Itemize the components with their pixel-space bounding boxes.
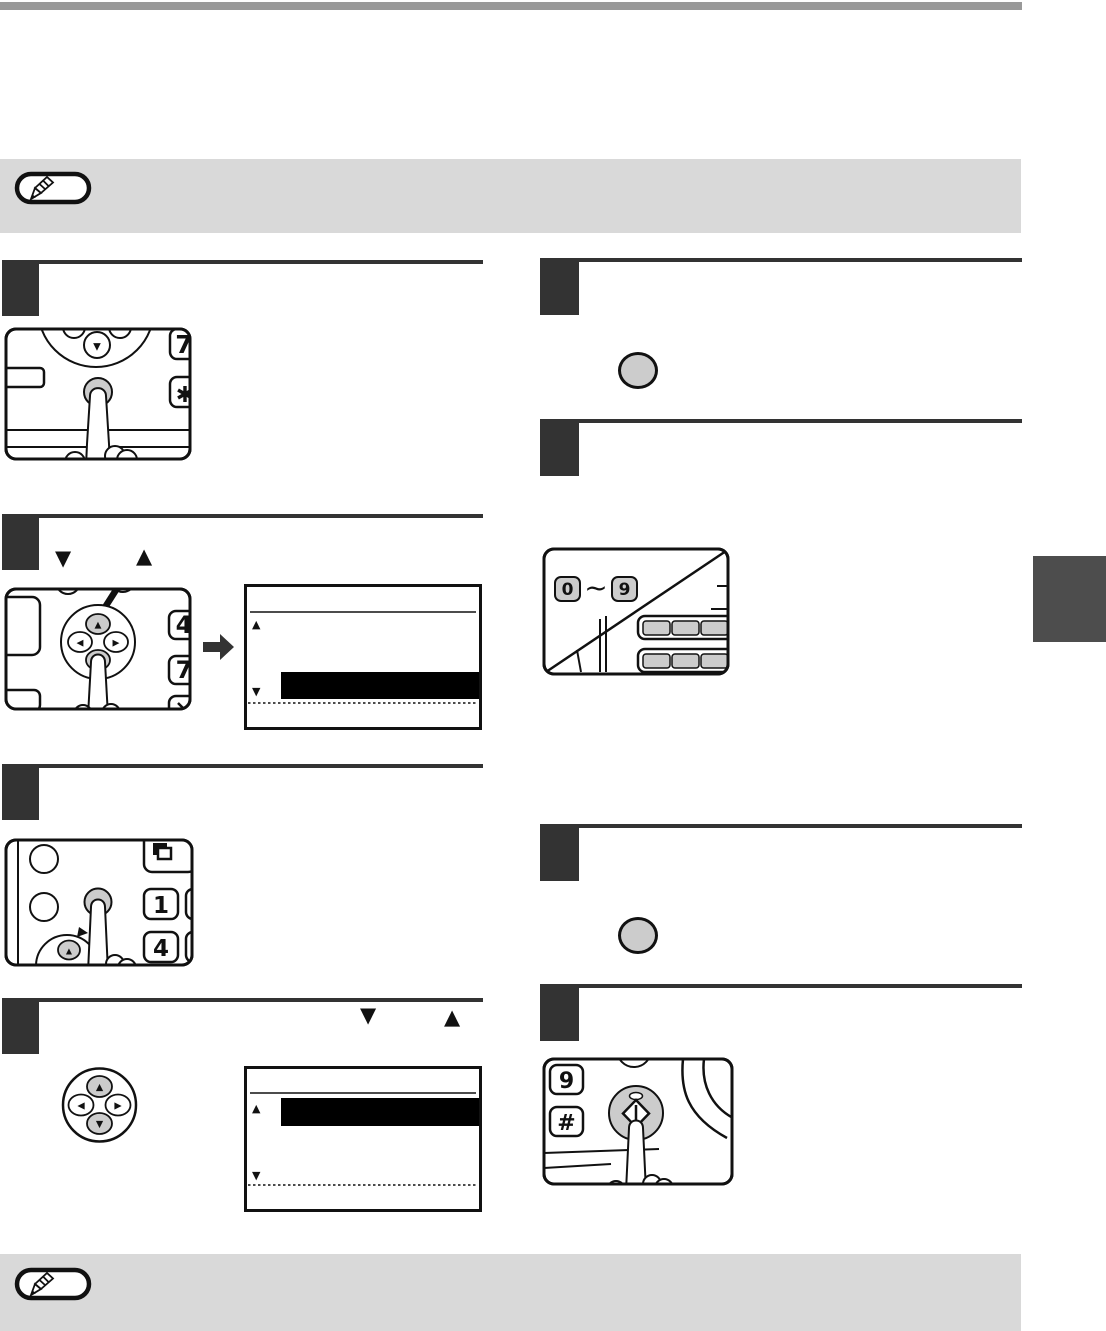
pad-left-glyph: ◀ — [77, 1101, 85, 1112]
heading-down-key-glyph: ▼ — [55, 548, 71, 569]
display-select-1: ▲ ▼ — [244, 584, 482, 730]
note-pill-top — [14, 171, 92, 205]
pad-right-glyph: ▶ — [113, 639, 120, 649]
scroll-up-glyph: ▲ — [252, 618, 261, 631]
key-hash-label: # — [557, 1111, 575, 1136]
key-4-label: 4 — [153, 936, 169, 962]
finger — [88, 900, 108, 969]
step-number-box-left-4 — [2, 998, 39, 1054]
ok-key-panel-illustration: 1 4 ▲ — [3, 837, 195, 968]
chapter-side-tab — [1033, 556, 1106, 642]
key-9-label: 9 — [619, 580, 631, 600]
heading-up-key-glyph: ▲ — [444, 1007, 460, 1028]
note-band-bottom — [0, 1254, 1021, 1331]
finger — [626, 1121, 646, 1188]
scroll-down-glyph: ▼ — [252, 685, 261, 698]
heading-up-key-glyph: ▲ — [136, 546, 152, 567]
page-top-bar — [0, 2, 1022, 10]
step-rule-left-4 — [2, 998, 483, 1002]
tilde-glyph: ~ — [584, 571, 607, 604]
pad-left-glyph: ◀ — [77, 639, 84, 649]
step-number-box-right-4 — [540, 984, 579, 1041]
selected-row-highlight — [281, 1098, 479, 1126]
note-pill-bottom — [14, 1267, 92, 1301]
pad-down-glyph: ▼ — [96, 1119, 104, 1130]
wheel-down-glyph: ▼ — [93, 342, 101, 353]
side-key — [3, 368, 44, 387]
step-number-box-right-3 — [540, 824, 579, 881]
key-9-label: 9 — [559, 1069, 574, 1094]
ok-key-icon — [618, 352, 658, 389]
start-key-panel-illustration: 9 # — [541, 1056, 735, 1187]
step-rule-right-4 — [540, 984, 1022, 988]
arrow-right-icon — [203, 633, 235, 661]
step-number-box-right-2 — [540, 419, 579, 476]
ok-key-icon — [618, 917, 658, 954]
manual-page: ▼ 7 ✱ ▼ ▲ ▲ ◀ — [0, 0, 1106, 1331]
step-number-box-left-1 — [2, 260, 39, 316]
pad-up-glyph: ▲ — [96, 1082, 104, 1093]
pad-up-glyph: ▲ — [66, 947, 73, 956]
step-rule-right-2 — [540, 419, 1022, 423]
pad-right-glyph: ▶ — [114, 1101, 122, 1112]
step-rule-right-1 — [540, 258, 1022, 262]
step-rule-left-2 — [2, 514, 483, 518]
note-band-top — [0, 159, 1021, 233]
key-0-label: 0 — [562, 580, 574, 600]
step-rule-left-3 — [2, 764, 483, 768]
scroll-down-glyph: ▼ — [252, 1169, 261, 1182]
display-select-2: ▲ ▼ — [244, 1066, 482, 1212]
scroll-up-glyph: ▲ — [252, 1102, 261, 1115]
arrow-pad-icon: ▲ ◀ ▶ ▼ — [61, 1066, 138, 1144]
key-1-label: 1 — [153, 893, 169, 919]
menu-key-panel-illustration: ▼ 7 ✱ — [3, 326, 193, 462]
step-rule-right-3 — [540, 824, 1022, 828]
pad-up-glyph: ▲ — [95, 621, 102, 631]
step-number-box-right-1 — [540, 258, 579, 315]
finger — [88, 655, 108, 713]
step-number-box-left-3 — [2, 764, 39, 820]
step-number-box-left-2 — [2, 514, 39, 570]
arrow-pad-panel-illustration: ▲ ◀ ▶ ▼ 4 7 — [3, 586, 193, 712]
step-rule-left-1 — [2, 260, 483, 264]
selected-row-highlight — [281, 672, 479, 699]
heading-down-key-glyph: ▼ — [360, 1005, 376, 1026]
numeric-keys-panel-illustration: 0 ~ 9 — [541, 546, 731, 677]
